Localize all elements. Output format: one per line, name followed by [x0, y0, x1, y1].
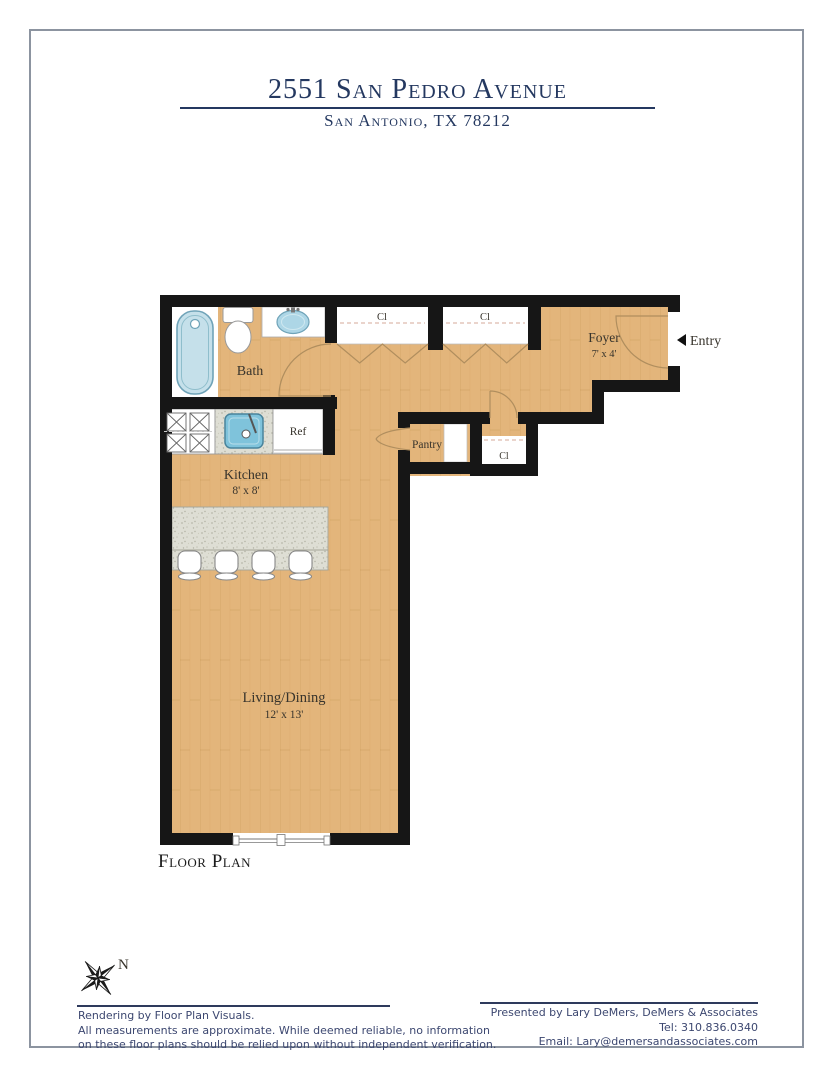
footer-left-rule	[77, 1005, 390, 1007]
compass-icon: N	[70, 948, 142, 1006]
page-title: 2551 San Pedro Avenue	[0, 74, 835, 106]
foyer-label: Foyer	[588, 330, 620, 345]
bathtub-icon	[177, 311, 213, 394]
window	[233, 833, 330, 846]
footer-right-line: Presented by Lary DeMers, DeMers & Assoc…	[491, 1006, 758, 1021]
footer-left-text: Rendering by Floor Plan Visuals. All mea…	[78, 1009, 496, 1053]
footer-right-line: Email: Lary@demersandassociates.com	[491, 1035, 758, 1050]
page-subtitle: San Antonio, TX 78212	[0, 111, 835, 131]
kitchen-label: Kitchen	[224, 468, 268, 483]
title-underline	[180, 107, 655, 109]
footer-left-line: on these floor plans should be relied up…	[78, 1038, 496, 1053]
foyer-dims: 7' x 4'	[592, 349, 617, 360]
toilet-icon	[223, 308, 253, 354]
footer-right-rule	[480, 1002, 758, 1004]
kitchen-sink-icon	[225, 414, 263, 448]
ref-label: Ref	[290, 426, 307, 438]
footer-right-line: Tel: 310.836.0340	[491, 1021, 758, 1036]
bath-label: Bath	[237, 364, 263, 379]
footer-right-text: Presented by Lary DeMers, DeMers & Assoc…	[491, 1006, 758, 1050]
living-dining-label: Living/Dining	[243, 690, 326, 706]
closet-label: Cl	[377, 312, 387, 323]
footer-left-line: All measurements are approximate. While …	[78, 1024, 496, 1039]
footer-left-line: Rendering by Floor Plan Visuals.	[78, 1009, 496, 1024]
floor-plan-caption: Floor Plan	[158, 851, 251, 873]
pantry-label: Pantry	[412, 439, 442, 451]
compass-north-label: N	[118, 957, 129, 973]
living-dining-dims: 12' x 13'	[265, 709, 304, 721]
floor-plan: Bath Kitchen 8' x 8' Living/Dining 12' x…	[150, 285, 730, 870]
entry-opening	[668, 312, 680, 366]
kitchen-dims: 8' x 8'	[232, 485, 259, 497]
closet-label: Cl	[499, 451, 509, 462]
entry-label: Entry	[690, 334, 721, 349]
closet-label: Cl	[480, 312, 490, 323]
